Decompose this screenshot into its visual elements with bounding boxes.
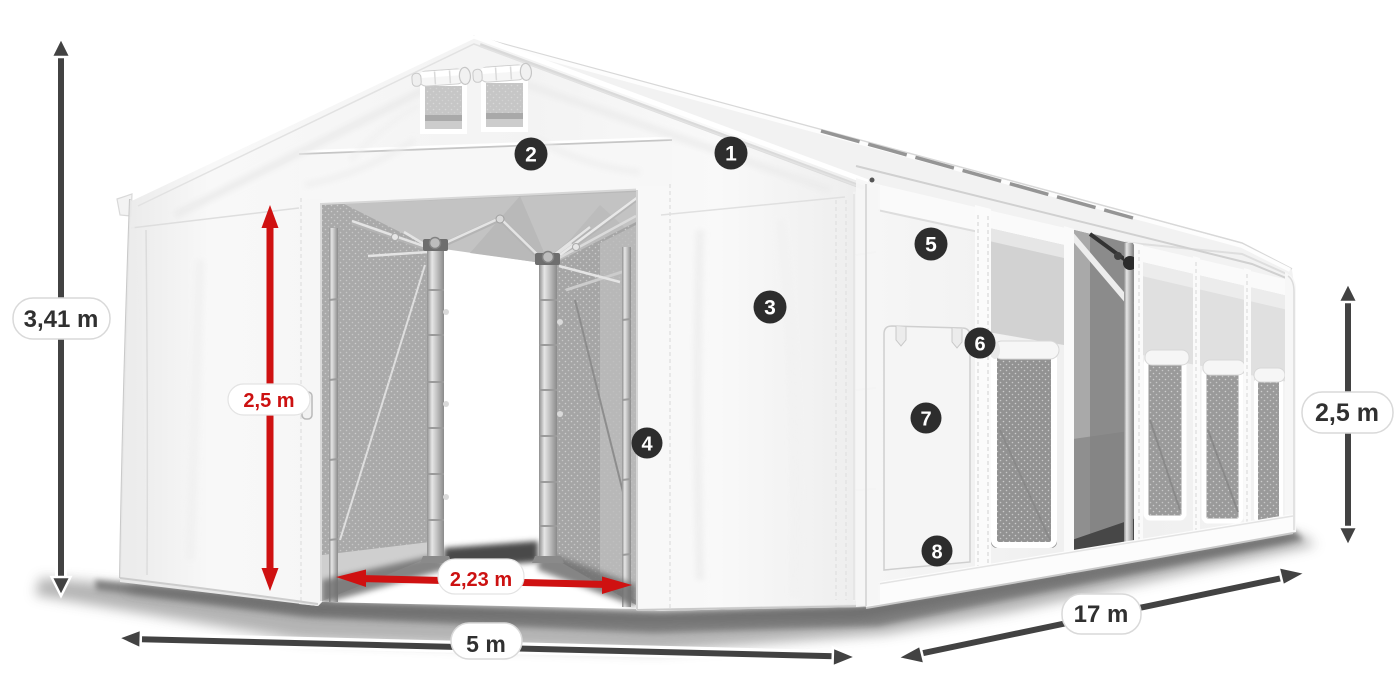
svg-text:2,5 m: 2,5 m — [1315, 399, 1379, 427]
svg-text:6: 6 — [974, 334, 985, 356]
svg-text:3,41 m: 3,41 m — [24, 306, 99, 333]
svg-text:5: 5 — [925, 234, 937, 257]
svg-text:5 m: 5 m — [466, 631, 506, 657]
svg-text:1: 1 — [725, 143, 737, 166]
svg-text:17 m: 17 m — [1074, 601, 1129, 628]
svg-text:3: 3 — [764, 297, 776, 320]
svg-text:2,5 m: 2,5 m — [243, 390, 294, 412]
svg-text:2: 2 — [525, 144, 537, 167]
svg-text:8: 8 — [931, 542, 942, 564]
svg-text:2,23 m: 2,23 m — [450, 569, 512, 591]
svg-text:7: 7 — [920, 409, 931, 431]
svg-text:4: 4 — [641, 434, 653, 456]
